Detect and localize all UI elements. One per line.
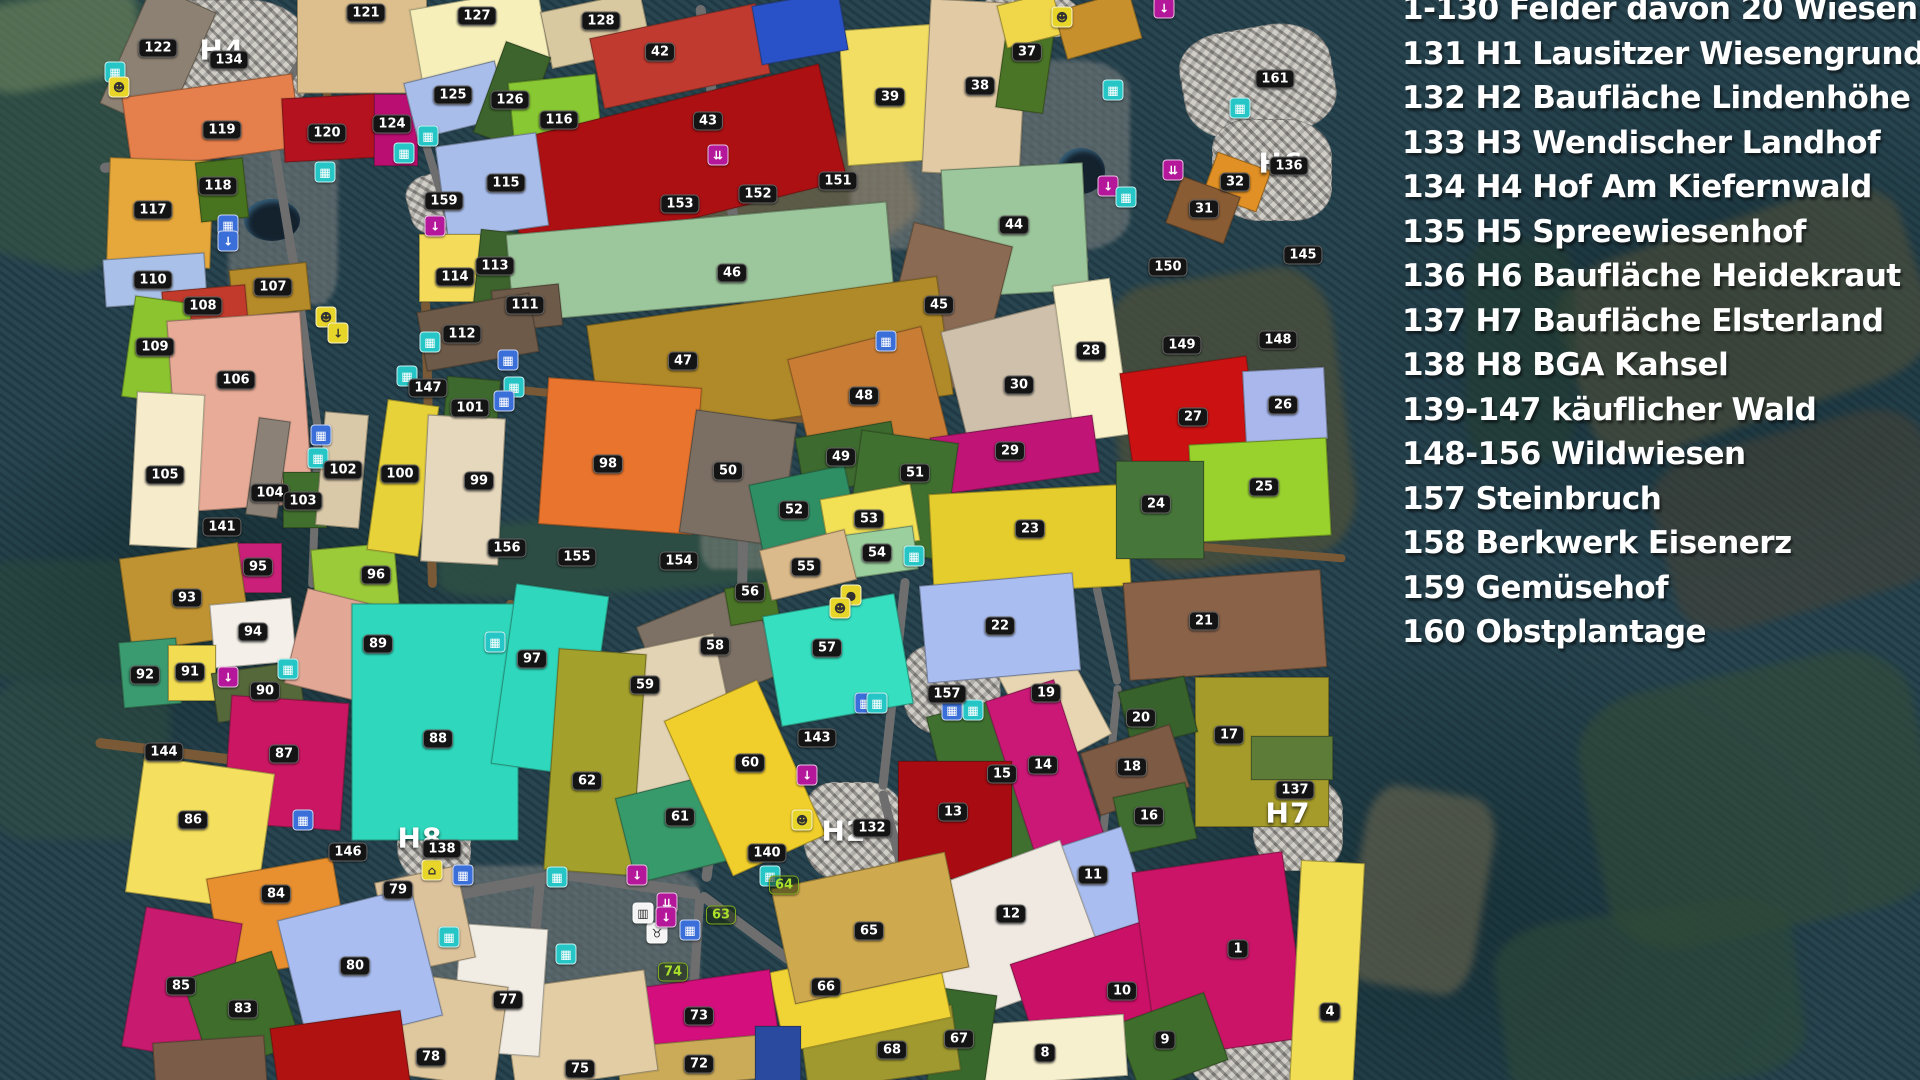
field-unlabeled [152,1035,267,1080]
field-tag-110: 110 [133,271,172,290]
field-tag-111: 111 [505,296,544,315]
sellpoint-icon: ↓ [797,765,818,786]
field-tag-156: 156 [487,539,526,558]
worker-icon: ☻ [1052,7,1073,28]
field-tag-45: 45 [924,296,954,315]
farmhouse-icon: ⌂ [422,860,443,881]
truck-icon: ▥ [633,903,654,924]
farm-tag-136: 136 [1269,157,1308,176]
field-tag-93: 93 [172,589,202,608]
field-tag-140: 140 [747,844,786,863]
map-stage: ▦☻▦▦↓▦▦⇊↓☻▦↓▦▦⇊☻↓▦▦▦▦▦▦▦▦▦↓▦▦▦⌂▦●☻▦▦▦▦↓☻… [0,0,1920,1080]
field-tag-89: 89 [363,635,393,654]
farm-label-H7: H7 [1266,797,1311,830]
field-tag-124: 124 [372,115,411,134]
field-tag-87: 87 [269,745,299,764]
field-tag-148: 148 [1258,331,1297,350]
field-tag-106: 106 [216,371,255,390]
shop-icon: ▦ [311,425,332,446]
field-tag-100: 100 [380,465,419,484]
legend-line-11: 157 Steinbruch [1402,477,1920,522]
vehicle-shop-icon: ▦ [876,331,897,352]
farm-tag-134: 134 [209,51,248,70]
field-tag-25: 25 [1249,478,1279,497]
unload-icon: ↓ [328,323,349,344]
field-tag-64: 64 [769,876,799,895]
production-icon: ▦ [1116,187,1137,208]
field-tag-154: 154 [659,552,698,571]
sellpoint-icon: ↓ [425,216,446,237]
field-tag-44: 44 [999,216,1029,235]
field-unlabeled [755,1026,801,1080]
field-tag-102: 102 [323,461,362,480]
field-tag-147: 147 [408,379,447,398]
field-21 [1123,569,1327,681]
field-tag-159: 159 [424,192,463,211]
field-tag-141: 141 [202,518,241,537]
field-tag-61: 61 [665,808,695,827]
field-tag-42: 42 [645,43,675,62]
field-4 [1289,860,1365,1080]
field-tag-155: 155 [557,548,596,567]
field-tag-94: 94 [238,623,268,642]
sellpoint-icon: ⇊ [708,145,729,166]
production-icon: ▦ [963,700,984,721]
field-tag-49: 49 [826,448,856,467]
field-tag-11: 11 [1078,866,1108,885]
field-tag-122: 122 [138,39,177,58]
field-tag-12: 12 [996,905,1026,924]
field-tag-29: 29 [995,442,1025,461]
field-tag-17: 17 [1214,726,1244,745]
legend-line-10: 148-156 Wildwiesen [1402,432,1920,477]
unload-icon: ↓ [218,231,239,252]
field-tag-19: 19 [1031,684,1061,703]
field-tag-103: 103 [283,492,322,511]
field-tag-125: 125 [433,86,472,105]
field-tag-15: 15 [987,765,1017,784]
field-tag-66: 66 [811,978,841,997]
legend-line-13: 159 Gemüsehof [1402,566,1920,611]
field-tag-92: 92 [130,666,160,685]
field-tag-151: 151 [818,172,857,191]
production-icon: ▦ [904,546,925,567]
production-icon: ▦ [556,944,577,965]
field-tag-161: 161 [1255,70,1294,89]
farm-tag-132: 132 [852,819,891,838]
field-tag-74: 74 [658,963,688,982]
field-tag-62: 62 [572,772,602,791]
field-tag-121: 121 [346,4,385,23]
field-tag-97: 97 [517,650,547,669]
field-tag-51: 51 [900,464,930,483]
field-tag-43: 43 [693,112,723,131]
field-tag-109: 109 [135,338,174,357]
silo-icon: ▦ [498,350,519,371]
field-tag-1: 1 [1227,940,1248,959]
field-tag-119: 119 [202,121,241,140]
field-tag-126: 126 [490,91,529,110]
field-tag-117: 117 [133,201,172,220]
field-tag-157: 157 [927,685,966,704]
field-tag-85: 85 [166,977,196,996]
terrain-patch [1489,890,1811,1080]
legend-line-1: 131 H1 Lausitzer Wiesengrund [1402,32,1920,77]
field-tag-108: 108 [183,297,222,316]
field-tag-54: 54 [862,544,892,563]
field-tag-98: 98 [593,455,623,474]
field-tag-72: 72 [684,1055,714,1074]
field-tag-99: 99 [464,472,494,491]
field-tag-96: 96 [361,566,391,585]
field-tag-68: 68 [877,1041,907,1060]
field-tag-145: 145 [1283,246,1322,265]
farm-tag-138: 138 [422,840,461,859]
farm-tag-137: 137 [1275,781,1314,800]
field-tag-57: 57 [812,639,842,658]
field-tag-78: 78 [416,1048,446,1067]
field-tag-149: 149 [1162,336,1201,355]
road [1092,584,1122,686]
worker-icon: ☻ [109,77,130,98]
field-tag-84: 84 [261,885,291,904]
field-tag-13: 13 [938,803,968,822]
production-icon: ▦ [315,162,336,183]
legend-line-2: 132 H2 Baufläche Lindenhöhe [1402,76,1920,121]
field-tag-31: 31 [1189,200,1219,219]
field-tag-52: 52 [779,501,809,520]
field-tag-48: 48 [849,387,879,406]
field-tag-144: 144 [144,743,183,762]
field-tag-77: 77 [493,991,523,1010]
field-tag-127: 127 [457,7,496,26]
field-tag-107: 107 [253,278,292,297]
field-tag-116: 116 [539,111,578,130]
field-tag-152: 152 [738,185,777,204]
sellpoint-icon: ↓ [1154,0,1175,19]
shop-icon: ▦ [453,865,474,886]
field-tag-86: 86 [178,811,208,830]
field-tag-143: 143 [797,729,836,748]
field-tag-80: 80 [340,957,370,976]
field-tag-56: 56 [735,583,765,602]
field-tag-114: 114 [435,268,474,287]
field-tag-83: 83 [228,1000,258,1019]
production-icon: ▦ [1103,80,1124,101]
field-tag-14: 14 [1028,756,1058,775]
field-tag-16: 16 [1134,807,1164,826]
field-tag-105: 105 [145,466,184,485]
field-tag-21: 21 [1189,612,1219,631]
field-tag-24: 24 [1141,495,1171,514]
field-tag-28: 28 [1076,342,1106,361]
field-tag-59: 59 [630,676,660,695]
field-tag-58: 58 [700,637,730,656]
field-tag-91: 91 [175,663,205,682]
field-tag-88: 88 [423,730,453,749]
field-tag-30: 30 [1004,376,1034,395]
field-tag-115: 115 [486,174,525,193]
worker-icon: ☻ [792,810,813,831]
legend-line-4: 134 H4 Hof Am Kiefernwald [1402,165,1920,210]
field-tag-4: 4 [1319,1003,1340,1022]
production-icon: ▦ [420,332,441,353]
legend-line-3: 133 H3 Wendischer Landhof [1402,121,1920,166]
legend-line-9: 139-147 käuflicher Wald [1402,388,1920,433]
field-tag-95: 95 [243,558,273,577]
field-tag-55: 55 [791,558,821,577]
production-icon: ▦ [1230,98,1251,119]
field-tag-90: 90 [250,682,280,701]
field-tag-9: 9 [1154,1031,1175,1050]
field-tag-120: 120 [307,124,346,143]
shop-icon: ▦ [293,810,314,831]
field-tag-73: 73 [684,1007,714,1026]
field-tag-101: 101 [450,399,489,418]
field-tag-79: 79 [383,881,413,900]
worker-icon: ☻ [830,598,851,619]
field-tag-26: 26 [1268,396,1298,415]
field-tag-112: 112 [442,325,481,344]
production-icon: ▦ [547,867,568,888]
production-icon: ▦ [439,927,460,948]
field-unlabeled [1251,736,1333,780]
field-tag-22: 22 [985,617,1015,636]
production-icon: ▦ [418,126,439,147]
field-tag-39: 39 [875,88,905,107]
field-tag-8: 8 [1034,1044,1055,1063]
field-tag-32: 32 [1220,173,1250,192]
field-tag-113: 113 [475,257,514,276]
silo-icon: ▦ [680,920,701,941]
field-tag-23: 23 [1015,520,1045,539]
production-icon: ▦ [485,632,506,653]
field-tag-146: 146 [328,843,367,862]
sellpoint-icon: ↓ [656,907,677,928]
field-tag-153: 153 [660,195,699,214]
legend-line-6: 136 H6 Baufläche Heidekraut [1402,254,1920,299]
field-tag-46: 46 [717,264,747,283]
field-tag-63: 63 [706,906,736,925]
sellpoint-icon: ↓ [627,865,648,886]
field-tag-38: 38 [965,77,995,96]
field-unlabeled [751,0,848,65]
field-tag-50: 50 [713,462,743,481]
field-tag-20: 20 [1126,709,1156,728]
production-icon: ▦ [867,693,888,714]
field-tag-47: 47 [668,352,698,371]
legend-line-14: 160 Obstplantage [1402,610,1920,655]
field-tag-150: 150 [1148,258,1187,277]
legend-line-7: 137 H7 Baufläche Elsterland [1402,299,1920,344]
field-tag-18: 18 [1117,758,1147,777]
field-tag-118: 118 [198,177,237,196]
field-tag-75: 75 [565,1060,595,1079]
sellpoint-icon: ⇊ [1163,160,1184,181]
silo-icon: ▦ [494,391,515,412]
field-tag-67: 67 [944,1030,974,1049]
legend-line-0: 1-130 Felder davon 20 Wiesen [1402,0,1920,32]
field-tag-27: 27 [1178,408,1208,427]
production-icon: ▦ [394,143,415,164]
field-tag-128: 128 [581,12,620,31]
sellpoint-icon: ↓ [218,667,239,688]
field-tag-37: 37 [1012,43,1042,62]
legend-line-12: 158 Berkwerk Eisenerz [1402,521,1920,566]
field-tag-60: 60 [735,754,765,773]
legend-line-8: 138 H8 BGA Kahsel [1402,343,1920,388]
legend-line-5: 135 H5 Spreewiesenhof [1402,210,1920,255]
field-tag-53: 53 [854,510,884,529]
field-tag-10: 10 [1107,982,1137,1001]
field-tag-65: 65 [854,922,884,941]
production-icon: ▦ [278,659,299,680]
legend: 1-130 Felder davon 20 Wiesen131 H1 Lausi… [1402,0,1920,655]
